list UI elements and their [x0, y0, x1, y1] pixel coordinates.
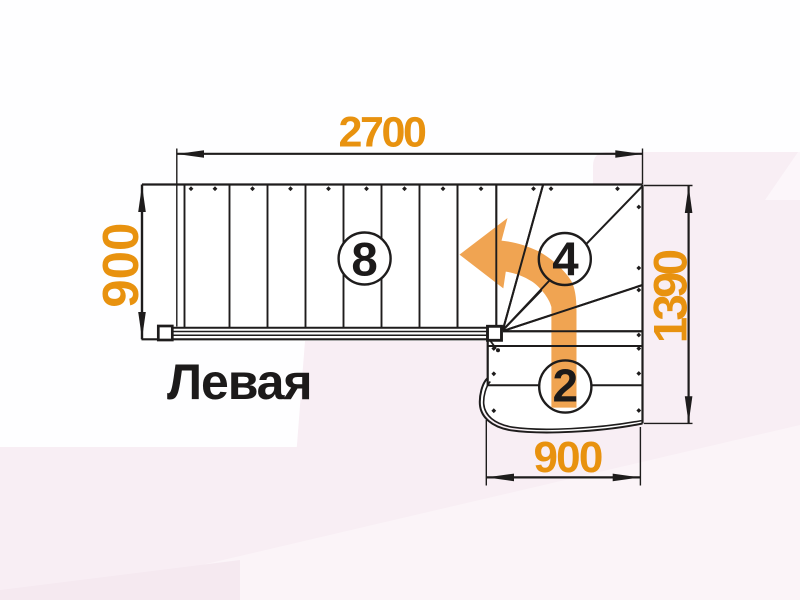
svg-text:900: 900 [92, 223, 149, 308]
svg-text:Левая: Левая [167, 354, 311, 410]
svg-text:2: 2 [553, 359, 579, 411]
svg-text:4: 4 [552, 233, 579, 286]
svg-text:1390: 1390 [645, 250, 698, 343]
svg-text:900: 900 [533, 433, 601, 482]
svg-text:2700: 2700 [338, 108, 426, 156]
svg-text:8: 8 [351, 233, 377, 286]
